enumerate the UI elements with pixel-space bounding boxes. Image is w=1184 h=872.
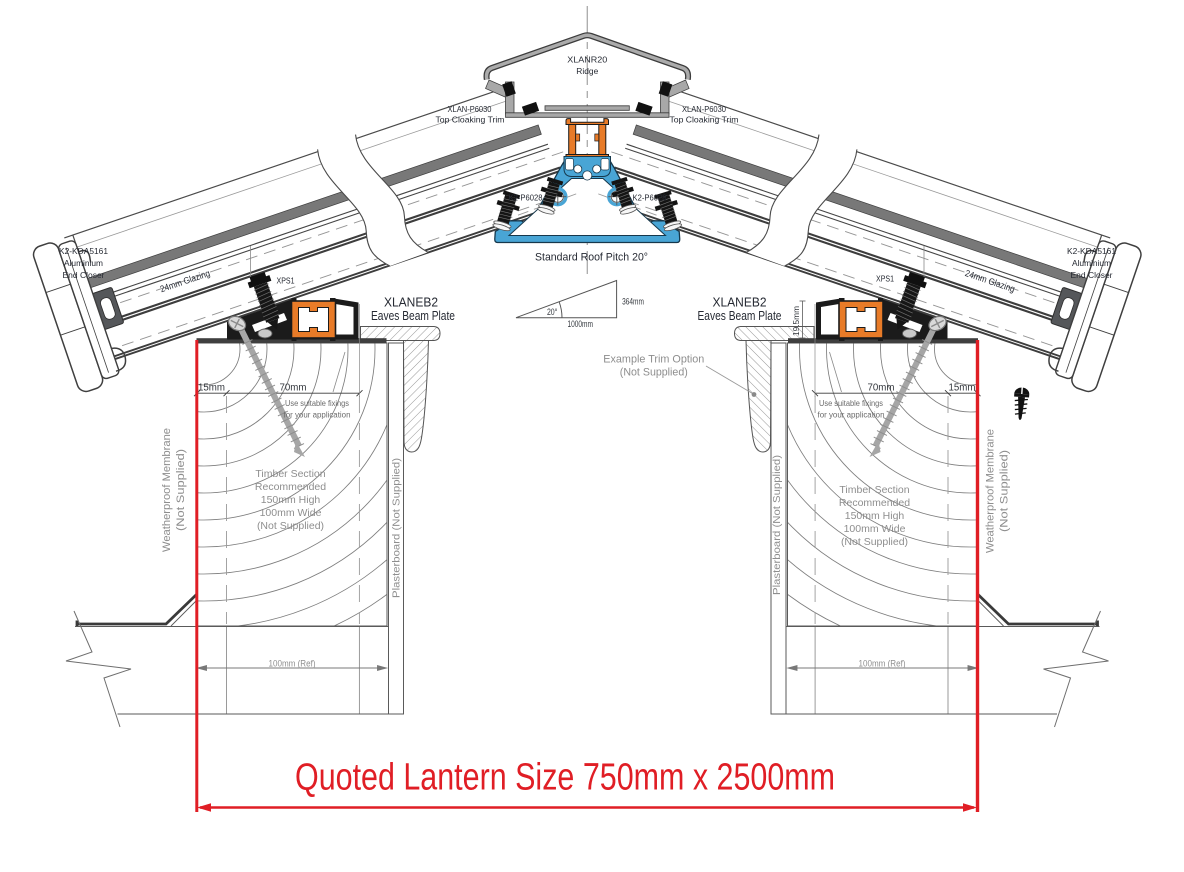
svg-text:XLAN-P6030: XLAN-P6030 (448, 104, 492, 114)
svg-text:XLAN-P6030: XLAN-P6030 (682, 104, 726, 114)
svg-text:for your application: for your application (818, 411, 885, 420)
svg-text:Top Cloaking Trim: Top Cloaking Trim (436, 115, 505, 125)
svg-text:XPS1: XPS1 (277, 276, 295, 286)
svg-text:Plasterboard (Not Supplied): Plasterboard (Not Supplied) (771, 455, 783, 595)
svg-text:150mm High: 150mm High (261, 494, 321, 506)
svg-text:100mm Wide: 100mm Wide (260, 507, 322, 519)
svg-text:K2-KDA5161: K2-KDA5161 (1067, 246, 1116, 256)
svg-text:Aluminium: Aluminium (1072, 258, 1111, 268)
svg-text:15mm: 15mm (198, 383, 225, 394)
svg-text:XPS1: XPS1 (876, 274, 894, 284)
svg-text:(Not Supplied): (Not Supplied) (175, 449, 187, 531)
svg-text:Eaves Beam Plate: Eaves Beam Plate (371, 309, 455, 323)
svg-text:19.5mm: 19.5mm (791, 306, 801, 336)
svg-text:Recommended: Recommended (255, 481, 326, 493)
svg-text:20°: 20° (547, 307, 558, 317)
svg-text:XLANEB2: XLANEB2 (384, 296, 438, 310)
svg-text:Weatherproof Membrane: Weatherproof Membrane (161, 428, 173, 552)
svg-text:XLANR20: XLANR20 (567, 55, 607, 65)
svg-text:70mm: 70mm (868, 383, 895, 394)
svg-text:(Not Supplied): (Not Supplied) (620, 367, 688, 379)
svg-text:150mm High: 150mm High (845, 510, 905, 522)
svg-text:(Not Supplied): (Not Supplied) (257, 520, 324, 532)
svg-text:70mm: 70mm (280, 383, 307, 394)
svg-text:End Closer: End Closer (1071, 270, 1113, 280)
svg-text:for your application: for your application (284, 411, 351, 420)
svg-text:100mm (Ref): 100mm (Ref) (859, 659, 906, 669)
svg-text:100mm (Ref): 100mm (Ref) (269, 659, 316, 669)
svg-text:100mm Wide: 100mm Wide (844, 523, 906, 535)
svg-text:(Not Supplied): (Not Supplied) (841, 536, 908, 548)
svg-text:(Not Supplied): (Not Supplied) (999, 450, 1011, 532)
svg-text:XLANEB2: XLANEB2 (713, 296, 767, 310)
svg-text:Timber Section: Timber Section (839, 484, 909, 496)
svg-text:K2-P6028: K2-P6028 (633, 193, 667, 203)
svg-text:15mm: 15mm (949, 383, 976, 394)
svg-text:Use suitable fixings: Use suitable fixings (285, 399, 349, 408)
svg-text:Ridge: Ridge (576, 66, 598, 76)
svg-text:K2-KDA5161: K2-KDA5161 (59, 246, 108, 256)
svg-text:Quoted Lantern Size 750mm x 25: Quoted Lantern Size 750mm x 2500mm (295, 757, 835, 799)
svg-text:364mm: 364mm (622, 297, 644, 307)
svg-text:Timber Section: Timber Section (255, 468, 325, 480)
svg-text:Recommended: Recommended (839, 497, 910, 509)
svg-text:K2-P6028: K2-P6028 (509, 193, 543, 203)
svg-text:Eaves Beam Plate: Eaves Beam Plate (698, 309, 782, 323)
svg-text:Standard Roof Pitch 20°: Standard Roof Pitch 20° (535, 252, 648, 264)
svg-text:Aluminium: Aluminium (64, 258, 103, 268)
svg-text:Use suitable fixings: Use suitable fixings (819, 399, 883, 408)
svg-text:Plasterboard (Not Supplied): Plasterboard (Not Supplied) (391, 458, 403, 598)
svg-text:Weatherproof Membrane: Weatherproof Membrane (985, 429, 997, 553)
svg-text:Example Trim Option: Example Trim Option (603, 354, 704, 366)
svg-text:End Closer: End Closer (63, 270, 105, 280)
svg-text:1000mm: 1000mm (567, 319, 593, 329)
svg-text:Top Cloaking Trim: Top Cloaking Trim (670, 115, 739, 125)
